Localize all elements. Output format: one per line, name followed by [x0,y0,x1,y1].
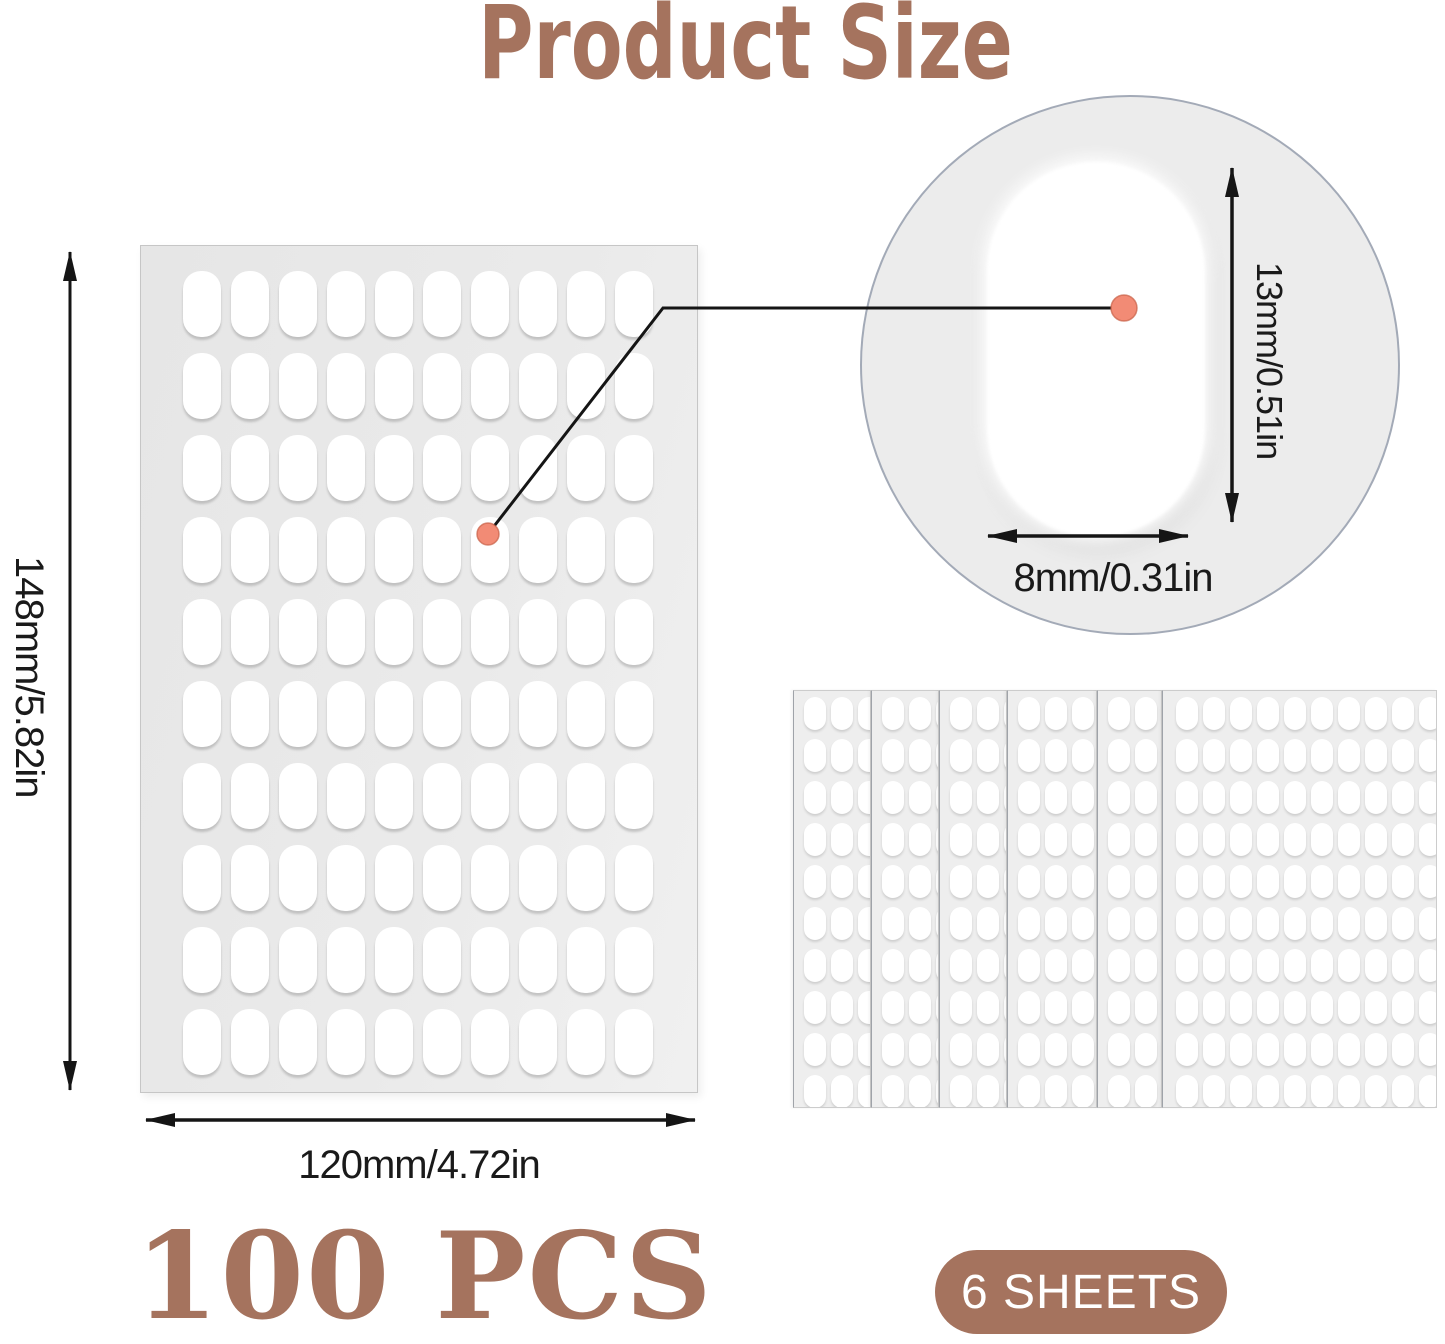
sticker-pill-small [1072,739,1094,772]
sticker-pill [327,353,365,419]
sticker-pill-small [1338,697,1360,730]
sticker-pill [183,353,221,419]
sticker-pill-small [1419,823,1437,856]
sticker-pill-small [1203,781,1225,814]
sticker-pill [471,763,509,829]
sticker-pill-small [1392,865,1414,898]
sticker-pill-small [1045,1033,1067,1066]
sticker-pill-small [1176,991,1198,1024]
pieces-count-label: 100 PCS [135,1217,714,1337]
sticker-pill-small [1108,781,1130,814]
sticker-pill-small [1365,1033,1387,1066]
sticker-pill [519,681,557,747]
sticker-pill [615,763,653,829]
sticker-pill-small [1203,823,1225,856]
sticker-pill-small [1257,1075,1279,1108]
sticker-pill-small [1230,1075,1252,1108]
sticker-pill [471,1009,509,1075]
sticker-pill-small [831,697,853,730]
sticker-pill-small [1045,697,1067,730]
sticker-pill [279,845,317,911]
sticker-pill [423,845,461,911]
sticker-pill [615,1009,653,1075]
sticker-pill-small [1419,1075,1437,1108]
sticker-pill-small [1045,991,1067,1024]
stacked-sheet-grid [1098,691,1161,1108]
sticker-pill-small [1338,823,1360,856]
sticker-pill-small [1230,865,1252,898]
stacked-sheet-1 [793,690,871,1108]
stacked-sheet-2 [871,690,939,1108]
sticker-pill [567,517,605,583]
sticker-pill-small [1203,1033,1225,1066]
sticker-pill-small [804,865,826,898]
sticker-pill-small [858,697,871,730]
sticker-pill-small [1284,823,1306,856]
sticker-pill-small [1311,781,1333,814]
sticker-pill-small [909,865,931,898]
sticker-pill [375,353,413,419]
sticker-pill [327,271,365,337]
magnifier-circle [860,95,1400,635]
sticker-pill-small [1045,865,1067,898]
sticker-pill-small [1018,991,1040,1024]
sticker-pill [519,599,557,665]
sticker-pill-small [858,823,871,856]
sticker-pill-small [1257,949,1279,982]
sticker-pill-small [1203,949,1225,982]
sticker-pill [615,435,653,501]
sticker-pill-small [1230,949,1252,982]
stacked-sheet-6 [1162,690,1437,1108]
sticker-pill [375,681,413,747]
sticker-pill-small [1135,907,1157,940]
sticker-pill-small [1365,697,1387,730]
sheets-count-text: 6 SHEETS [961,1265,1201,1320]
sticker-pill [567,435,605,501]
sticker-pill [423,927,461,993]
sticker-pill-small [1018,1033,1040,1066]
sticker-pill-small [977,697,999,730]
sticker-pill-small [1338,907,1360,940]
sticker-pill-small [1018,823,1040,856]
sticker-pill [471,353,509,419]
sticker-pill-small [909,949,931,982]
sticker-pill-small [1419,697,1437,730]
sticker-pill [375,435,413,501]
sticker-pill-small [1072,991,1094,1024]
sticker-pill-small [858,865,871,898]
sticker-pill-small [1365,991,1387,1024]
sticker-pill-small [1419,1033,1437,1066]
sticker-pill-small [1176,865,1198,898]
sticker-pill-small [1230,697,1252,730]
sticker-pill-small [1392,991,1414,1024]
sticker-pill [375,845,413,911]
stacked-sheet-grid [794,691,870,1108]
sticker-pill-small [977,823,999,856]
sticker-pill-small [950,991,972,1024]
sticker-pill [567,271,605,337]
stacked-sheet-3 [939,690,1007,1108]
sticker-pill-small [882,697,904,730]
sticker-pill [279,599,317,665]
sticker-pill-small [977,781,999,814]
sticker-pill-small [1392,907,1414,940]
sticker-pill [471,681,509,747]
sticker-pill-small [804,1033,826,1066]
sticker-pill-small [1392,739,1414,772]
sticker-pill-small [1230,991,1252,1024]
sticker-pill [327,681,365,747]
sticker-pill-small [909,907,931,940]
sticker-pill-small [1045,781,1067,814]
sticker-pill [519,517,557,583]
sticker-pill-small [1176,823,1198,856]
sticker-pill-small [1311,865,1333,898]
sticker-pill-small [831,907,853,940]
sticker-pill-small [909,823,931,856]
magnifier-height-label: 13mm/0.51in [1248,262,1290,459]
sticker-pill [327,1009,365,1075]
sticker-pill-small [1072,781,1094,814]
sticker-pill [519,435,557,501]
sticker-pill-small [977,991,999,1024]
sticker-pill [183,517,221,583]
sticker-pill-small [1284,781,1306,814]
sticker-pill-small [1176,1033,1198,1066]
sticker-pill-small [1108,991,1130,1024]
sticker-pill-small [1311,991,1333,1024]
sticker-pill [519,271,557,337]
sticker-pill-small [1419,949,1437,982]
sticker-pill-small [1072,823,1094,856]
page-title: Product Size [211,0,1280,103]
sticker-pill-small [1072,1033,1094,1066]
sticker-pill [327,927,365,993]
sticker-pill [423,599,461,665]
sticker-pill [567,353,605,419]
sticker-pill [183,599,221,665]
sticker-pill-small [950,739,972,772]
sticker-pill-small [1311,949,1333,982]
sticker-pill [375,517,413,583]
sticker-pill [567,1009,605,1075]
main-sheet [140,245,698,1093]
sticker-pill-small [804,697,826,730]
sticker-pill-small [1135,823,1157,856]
sticker-pill [615,517,653,583]
sticker-pill [423,681,461,747]
sticker-pill-small [1045,949,1067,982]
sticker-pill-small [977,739,999,772]
sticker-pill-small [1338,781,1360,814]
sticker-pill-small [950,865,972,898]
sticker-pill [519,927,557,993]
sticker-pill-small [950,1075,972,1108]
sticker-pill [279,1009,317,1075]
sticker-pill [327,435,365,501]
stacked-sheet-grid [940,691,1006,1108]
sticker-pill-small [1365,823,1387,856]
sticker-pill-small [1392,823,1414,856]
sticker-pill-small [882,823,904,856]
sticker-pill-small [1072,865,1094,898]
sticker-pill-small [1257,1033,1279,1066]
sticker-pill-small [1365,949,1387,982]
sticker-pill-small [1338,1075,1360,1108]
sticker-pill-small [1392,1033,1414,1066]
sticker-pill-small [909,781,931,814]
sticker-pill-small [804,949,826,982]
sticker-pill-small [1135,1033,1157,1066]
sticker-pill-small [1257,823,1279,856]
sticker-pill-small [1135,991,1157,1024]
sticker-pill [183,271,221,337]
sticker-pill-small [804,991,826,1024]
sticker-pill-small [950,697,972,730]
sticker-pill [615,353,653,419]
sticker-pill-small [1018,1075,1040,1108]
sticker-pill [279,763,317,829]
sticker-pill-small [1284,991,1306,1024]
sticker-pill [519,763,557,829]
sticker-pill-small [1045,907,1067,940]
sticker-pill-small [1072,907,1094,940]
sticker-pill-small [1203,865,1225,898]
sticker-pill-small [1135,949,1157,982]
sticker-pill-small [1018,907,1040,940]
sticker-pill-small [1176,1075,1198,1108]
sticker-pill-small [1257,697,1279,730]
sticker-pill-small [1230,1033,1252,1066]
sticker-pill-small [1284,949,1306,982]
sticker-pill-small [1338,991,1360,1024]
sticker-pill-small [909,1033,931,1066]
sticker-pill-small [1203,991,1225,1024]
sticker-pill [615,681,653,747]
sticker-pill-small [882,1075,904,1108]
sticker-pill-small [1135,865,1157,898]
sticker-pill-small [1203,1075,1225,1108]
sticker-pill-small [909,1075,931,1108]
sticker-pill-small [1135,1075,1157,1108]
sticker-pill [567,845,605,911]
stacked-sheet-4 [1007,690,1097,1108]
sticker-pill [519,1009,557,1075]
sticker-pill-small [950,949,972,982]
sticker-pill [279,927,317,993]
sticker-pill-small [1392,949,1414,982]
sticker-pill-small [831,781,853,814]
sticker-pill [279,271,317,337]
sticker-pill-small [1135,781,1157,814]
sticker-pill-small [1284,697,1306,730]
sticker-pill-small [950,907,972,940]
sticker-pill-small [1072,949,1094,982]
sticker-pill-small [1072,1075,1094,1108]
sticker-pill [423,763,461,829]
sticker-pill-small [977,949,999,982]
sticker-pill-small [909,697,931,730]
sticker-pill-small [1365,1075,1387,1108]
sheet-height-label: 148mm/5.82in [6,556,51,797]
sticker-pill-small [1419,739,1437,772]
sticker-pill-small [1018,697,1040,730]
sticker-pill-small [977,1033,999,1066]
sticker-pill [375,599,413,665]
sticker-pill-small [858,1033,871,1066]
sticker-pill-small [1045,823,1067,856]
sticker-pill [519,845,557,911]
sticker-pill-small [1284,1033,1306,1066]
sticker-pill-small [804,1075,826,1108]
sticker-pill [423,1009,461,1075]
sticker-pill-small [1018,865,1040,898]
sticker-pill [567,927,605,993]
sticker-pill [519,353,557,419]
sticker-pill [279,517,317,583]
sticker-pill-small [950,781,972,814]
sticker-pill [231,599,269,665]
sticker-pill [615,927,653,993]
sticker-pill [375,927,413,993]
sticker-pill-small [909,739,931,772]
sticker-pill-small [1203,739,1225,772]
sticker-pill [471,599,509,665]
sticker-pill [471,517,509,583]
sticker-pill [279,681,317,747]
sticker-pill [183,927,221,993]
sticker-pill-small [1419,907,1437,940]
sticker-pill-small [1311,907,1333,940]
sticker-pill-small [1284,1075,1306,1108]
sticker-pill-small [1108,907,1130,940]
sticker-pill-small [1419,865,1437,898]
sticker-pill-small [1176,781,1198,814]
stacked-sheet-grid [1163,691,1436,1108]
sticker-pill-small [1419,781,1437,814]
sticker-pill-small [1257,739,1279,772]
sticker-pill [183,763,221,829]
sticker-pill-small [1176,949,1198,982]
sticker-pill-small [1203,907,1225,940]
sticker-pill [231,517,269,583]
sticker-pill [279,353,317,419]
sticker-pill-small [858,739,871,772]
sticker-pill [183,435,221,501]
sticker-pill [615,599,653,665]
sticker-pill-small [831,1075,853,1108]
sticker-pill [375,1009,413,1075]
stacked-sheet-grid [872,691,938,1108]
sticker-pill [567,599,605,665]
sticker-pill [567,681,605,747]
sticker-pill-small [1135,739,1157,772]
sticker-pill-small [1108,1033,1130,1066]
sticker-pill [231,1009,269,1075]
sticker-pill-small [1230,907,1252,940]
sticker-pill-small [1230,823,1252,856]
sticker-pill-small [858,949,871,982]
sticker-pill [423,435,461,501]
sticker-pill-small [882,865,904,898]
sticker-pill-small [1108,949,1130,982]
sticker-pill [423,517,461,583]
sticker-pill-small [831,865,853,898]
sticker-pill [327,517,365,583]
sticker-pill-small [882,991,904,1024]
sticker-pill-small [950,1033,972,1066]
sticker-pill [615,845,653,911]
sticker-pill-small [950,823,972,856]
sticker-pill [471,927,509,993]
sticker-pill [231,681,269,747]
sticker-pill [471,271,509,337]
sheet-width-label: 120mm/4.72in [140,1143,698,1188]
sticker-pill-small [1108,1075,1130,1108]
sticker-pill-small [1176,697,1198,730]
sticker-pill-small [1108,823,1130,856]
sticker-pill [183,845,221,911]
magnifier-width-label: 8mm/0.31in [963,556,1263,601]
sticker-pill-small [831,1033,853,1066]
sticker-pill-small [1311,697,1333,730]
sticker-pill-small [1365,739,1387,772]
sticker-pill-small [804,739,826,772]
sticker-pill-small [977,907,999,940]
sticker-pill [375,271,413,337]
sticker-pill-small [1257,781,1279,814]
sticker-pill-small [1018,781,1040,814]
sticker-pill-small [1338,739,1360,772]
magnified-sticker [987,162,1205,537]
sticker-pill [423,353,461,419]
sticker-pill [327,599,365,665]
sticker-pill-small [1284,907,1306,940]
sticker-pill-small [1284,865,1306,898]
sticker-pill-small [1365,865,1387,898]
sticker-pill [183,1009,221,1075]
sticker-pill-small [804,907,826,940]
sticker-pill-small [1311,739,1333,772]
sticker-pill-small [882,907,904,940]
sticker-pill-small [1108,697,1130,730]
sticker-pill-small [1392,781,1414,814]
sticker-pill [231,845,269,911]
sticker-pill-small [1311,1075,1333,1108]
sticker-pill-small [1072,697,1094,730]
sticker-pill-small [804,781,826,814]
sticker-pill-small [858,781,871,814]
sticker-pill [567,763,605,829]
sticker-pill-small [1392,697,1414,730]
stacked-sheet-grid [1008,691,1096,1108]
sticker-pill [615,271,653,337]
sticker-pill [327,763,365,829]
sticker-pill [183,681,221,747]
sticker-pill [471,845,509,911]
sticker-pill [231,763,269,829]
sticker-pill-small [977,1075,999,1108]
sticker-pill-small [1176,739,1198,772]
sticker-pill [231,435,269,501]
sticker-pill-small [1108,739,1130,772]
product-size-infographic: Product Size 148mm/5.82in 120mm/4.72in 1… [0,0,1445,1344]
sticker-pill-small [831,823,853,856]
sticker-pill [279,435,317,501]
sticker-pill-small [1392,1075,1414,1108]
